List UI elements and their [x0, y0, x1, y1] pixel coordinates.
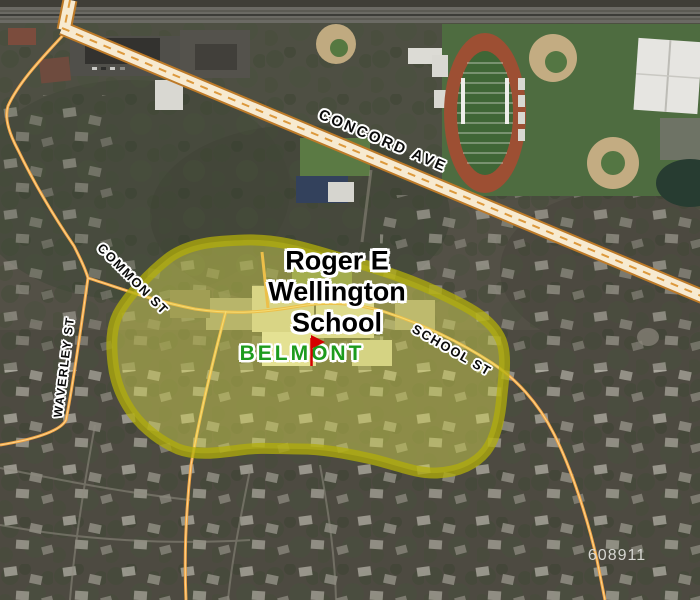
school-name-line2: Wellington: [268, 277, 405, 308]
railroad: [0, 0, 700, 23]
school-marker-flag: [300, 332, 332, 372]
map-id-label: 608911: [588, 547, 646, 565]
parking-lot: [660, 118, 700, 160]
baseball-field-north: [529, 34, 577, 82]
baseball-field-south: [587, 137, 639, 189]
athletics-complex: [432, 24, 700, 207]
map-container[interactable]: CONCORD AVE COMMON ST WAVERLEY ST SCHOOL…: [0, 0, 700, 600]
gym-building: [633, 38, 700, 114]
school-name-line3: School: [268, 308, 405, 339]
school-name-label: Roger E Wellington School: [268, 246, 405, 339]
school-name-line1: Roger E: [268, 246, 405, 277]
